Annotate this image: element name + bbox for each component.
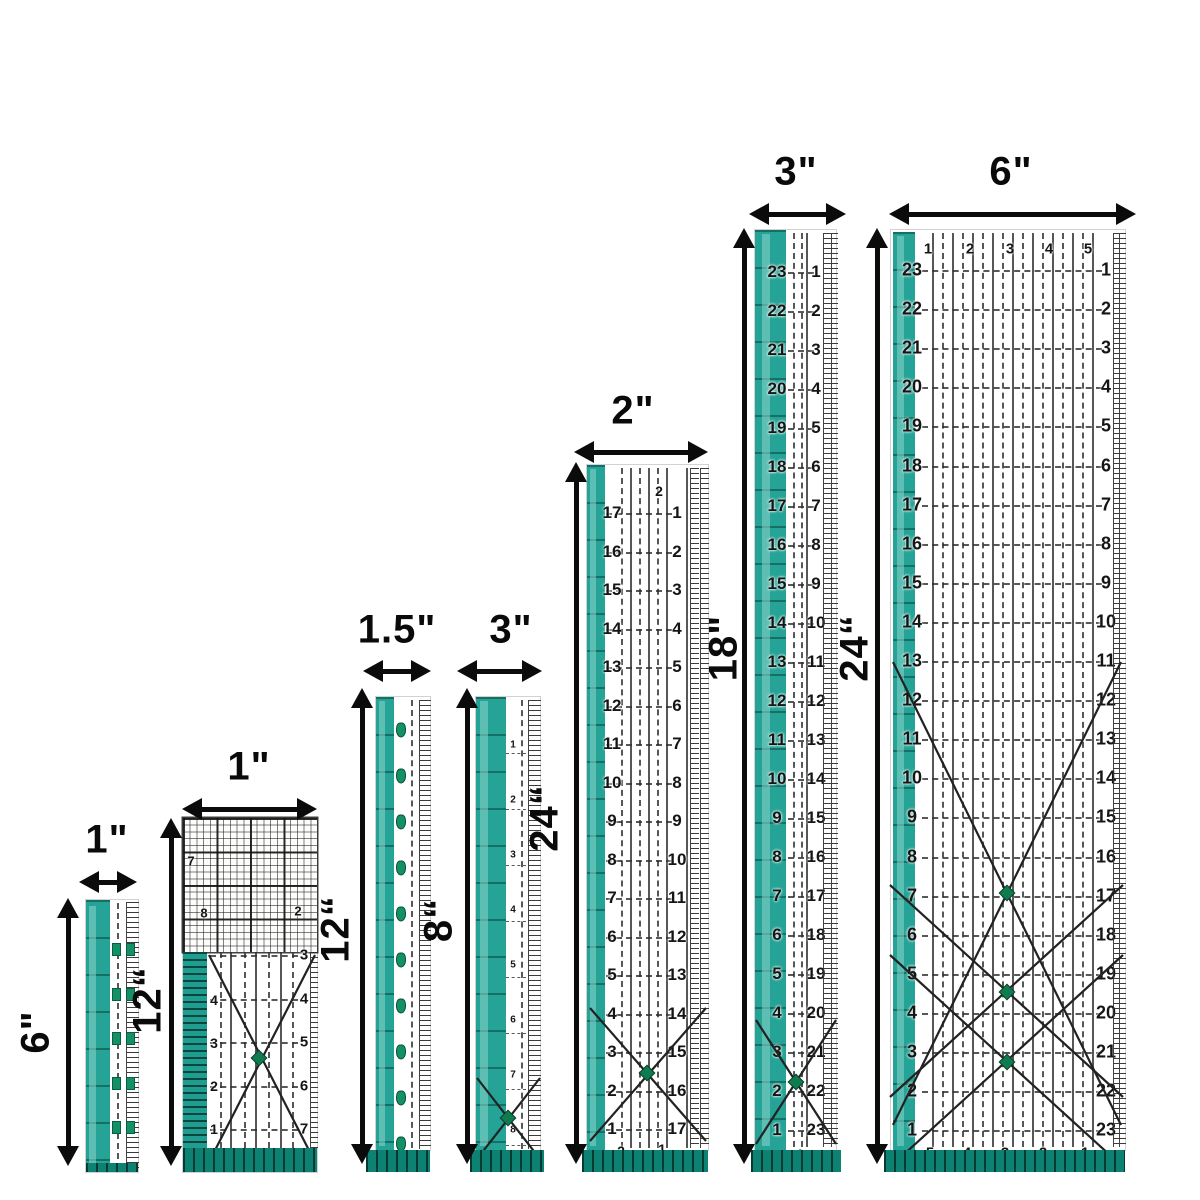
height-label: 24“ [833, 614, 878, 682]
ruler-number: 15 [668, 1042, 687, 1062]
column-line [280, 952, 282, 1148]
ruler-number: 21 [902, 338, 922, 359]
arrowhead-icon [457, 660, 477, 682]
arrowhead-icon [574, 441, 594, 463]
inch-row-line [922, 426, 1102, 428]
ruler-number: 5 [1084, 241, 1092, 258]
width-arrow [901, 212, 1124, 217]
green-marker [126, 1032, 135, 1045]
height-label: 24“ [523, 784, 568, 852]
ruler-number: 7 [187, 854, 194, 869]
bottom-edge [366, 1150, 430, 1172]
arrowhead-icon [117, 871, 137, 893]
ruler-number: 7 [811, 496, 820, 516]
stitch-tick-column [411, 700, 413, 1148]
inch-row-line [922, 309, 1102, 311]
ruler-number: 14 [668, 1004, 687, 1024]
ruler-number: 8 [1101, 533, 1111, 554]
stitch-tick-column [801, 233, 803, 1147]
arrowhead-icon [1116, 203, 1136, 225]
bottom-edge [884, 1150, 1125, 1172]
ruler-number: 8 [772, 847, 781, 867]
inch-row-line [788, 584, 814, 586]
inch-row-line [788, 350, 814, 352]
ruler-number: 16 [902, 533, 922, 554]
arrowhead-icon [733, 228, 755, 248]
ruler-number: 7 [1101, 494, 1111, 515]
green-marker [126, 943, 135, 956]
inch-row-line [922, 1091, 1102, 1093]
column-line [648, 468, 650, 1148]
width-label: 1.5" [358, 608, 437, 653]
stitch-tick-column [1062, 233, 1064, 1147]
ruler-number: 3 [907, 1042, 917, 1063]
ruler-number: 9 [1101, 572, 1111, 593]
green-marker [112, 1032, 121, 1045]
column-line [1032, 233, 1034, 1147]
inch-row-line [922, 583, 1102, 585]
ruler-number: 11 [902, 729, 921, 750]
ruler-number: 4 [210, 992, 218, 1008]
inch-row-line [788, 272, 814, 274]
teal-edge [183, 952, 207, 1148]
ruler-number: 5 [1101, 416, 1111, 437]
green-pin-marker [396, 769, 406, 784]
ruler-number: 4 [300, 990, 308, 1007]
arrowhead-icon [456, 1144, 478, 1164]
stitch-tick-column [793, 233, 795, 1147]
stitch-tick-column [962, 233, 964, 1147]
height-arrow [465, 700, 470, 1152]
inch-row-line [922, 778, 1102, 780]
edge-highlight [590, 469, 596, 1146]
green-pin-marker [396, 907, 406, 922]
inch-row-line [922, 348, 1102, 350]
ruler-number: 7 [907, 885, 917, 906]
inch-row-line [922, 896, 1102, 898]
ruler-number: 1 [772, 1120, 781, 1140]
ruler-number: 13 [768, 652, 787, 672]
ruler-number: 19 [768, 418, 787, 438]
green-marker [112, 988, 121, 1001]
arrowhead-icon [160, 1146, 182, 1166]
inch-row-line [506, 921, 526, 922]
ruler-number: 16 [603, 542, 622, 562]
column-line [1052, 233, 1054, 1147]
arrowhead-icon [749, 203, 769, 225]
ruler-number: 3 [210, 1035, 218, 1051]
width-label: 1" [85, 818, 128, 863]
inch-row-line [922, 857, 1102, 859]
green-pin-marker [396, 723, 406, 738]
green-pin-marker [396, 1045, 406, 1060]
ruler-number: 9 [772, 808, 781, 828]
ruler-number: 7 [607, 888, 616, 908]
inch-row-line [506, 1033, 526, 1034]
ruler-number: 8 [907, 846, 917, 867]
green-pin-marker [396, 999, 406, 1014]
arrowhead-icon [565, 1144, 587, 1164]
grid-section [183, 818, 317, 952]
ruler-number: 8 [811, 535, 820, 555]
column-line [972, 233, 974, 1147]
width-arrow [586, 450, 696, 455]
stitch-tick-column [621, 468, 623, 1148]
ruler-number: 2 [966, 241, 974, 258]
inch-row-line [210, 1086, 298, 1088]
ruler-number: 10 [768, 769, 787, 789]
width-label: 2" [611, 389, 654, 434]
ruler-number: 3 [672, 580, 681, 600]
height-arrow [66, 910, 71, 1154]
width-label: 6" [989, 150, 1032, 195]
column-line [1092, 233, 1094, 1147]
inch-row-line [922, 1013, 1102, 1015]
ruler-number: 5 [607, 965, 616, 985]
green-marker [112, 943, 121, 956]
ruler-number: 10 [668, 850, 687, 870]
bottom-edge [470, 1150, 544, 1172]
ruler-number: 8 [200, 906, 207, 921]
arrowhead-icon [889, 203, 909, 225]
ruler-number: 17 [603, 503, 622, 523]
inch-row-line [922, 817, 1102, 819]
ruler-number: 1 [1101, 260, 1111, 281]
inch-row-line [788, 428, 814, 430]
ruler-number: 17 [768, 496, 787, 516]
ruler-number: 7 [772, 886, 781, 906]
edge-highlight [480, 701, 488, 1146]
ruler-number: 13 [902, 651, 922, 672]
ruler-number: 18 [902, 455, 922, 476]
fine-tick-column [831, 233, 838, 1147]
ruler-number: 1 [210, 1121, 218, 1137]
column-line [932, 233, 934, 1147]
ruler-number: 6 [300, 1077, 308, 1094]
arrowhead-icon [733, 1144, 755, 1164]
arrowhead-icon [866, 228, 888, 248]
inch-row-line [788, 311, 814, 313]
ruler-number: 2 [907, 1081, 917, 1102]
inch-row-line [922, 505, 1102, 507]
ruler-number: 11 [768, 730, 786, 750]
ruler-number: 12 [603, 696, 622, 716]
arrowhead-icon [866, 1144, 888, 1164]
ruler-number: 12 [902, 690, 922, 711]
inch-row-line [506, 977, 526, 978]
stitch-tick-column [220, 952, 222, 1148]
stitch-tick-column [292, 952, 294, 1148]
green-pin-marker [396, 953, 406, 968]
ruler-number: 6 [907, 924, 917, 945]
inch-row-line [922, 661, 1102, 663]
ruler-number: 2 [1101, 299, 1111, 320]
inch-row-line [788, 389, 814, 391]
green-marker [112, 1121, 121, 1134]
ruler-number: 15 [768, 574, 787, 594]
ruler-number: 4 [1101, 377, 1111, 398]
inch-row-line [922, 1052, 1102, 1054]
height-label: 8“ [417, 898, 462, 942]
ruler-number: 2 [672, 542, 681, 562]
arrowhead-icon [456, 688, 478, 708]
width-label: 1" [227, 745, 270, 790]
inch-row-line [922, 1130, 1102, 1132]
ruler-number: 4 [672, 619, 681, 639]
inch-row-line [506, 1089, 526, 1090]
ruler-number: 3 [811, 340, 820, 360]
column-line [230, 952, 232, 1148]
ruler-number: 3 [510, 850, 516, 861]
ruler-number: 5 [811, 418, 820, 438]
ruler-number: 10 [603, 773, 622, 793]
ruler-number: 16 [668, 1081, 687, 1101]
height-arrow [574, 474, 579, 1152]
ruler-number: 6 [1101, 455, 1111, 476]
column-line [1012, 233, 1014, 1147]
ruler-number: 9 [672, 811, 681, 831]
ruler-number: 2 [294, 904, 301, 919]
inch-row-line [922, 739, 1102, 741]
ruler-number: 14 [902, 611, 922, 632]
stitch-tick-column [639, 468, 641, 1148]
ruler-number: 6 [510, 1015, 516, 1026]
inch-row-line [210, 1042, 298, 1044]
ruler-number: 5 [772, 964, 781, 984]
column-line [952, 233, 954, 1147]
inch-row-line [922, 466, 1102, 468]
arrowhead-icon [688, 441, 708, 463]
height-label: 6" [14, 1010, 59, 1053]
stitch-tick-column [1022, 233, 1024, 1147]
ruler-number: 17 [668, 1119, 687, 1139]
inch-row-line [506, 753, 526, 754]
ruler-number: 5 [300, 1034, 308, 1051]
green-pin-marker [396, 861, 406, 876]
ruler-number: 23 [902, 260, 922, 281]
height-arrow [875, 240, 880, 1152]
ruler-number: 4 [510, 905, 516, 916]
ruler-number: 10 [902, 768, 922, 789]
ruler-number: 17 [902, 494, 922, 515]
inch-row-line [506, 1145, 526, 1146]
ruler-number: 12 [768, 691, 787, 711]
ruler-number: 15 [902, 572, 922, 593]
width-label: 3" [489, 608, 532, 653]
ruler-number: 4 [772, 1003, 781, 1023]
ruler-number: 2 [607, 1081, 616, 1101]
arrowhead-icon [160, 818, 182, 838]
stitch-tick-column [1082, 233, 1084, 1147]
column-line [992, 233, 994, 1147]
stitch-tick-column [244, 952, 246, 1148]
arrowhead-icon [297, 798, 317, 820]
inch-row-line [210, 999, 298, 1001]
stitch-tick-column [521, 700, 523, 1149]
ruler-number: 20 [768, 379, 787, 399]
ruler-number: 9 [607, 811, 616, 831]
ruler-number: 9 [811, 574, 820, 594]
ruler-number: 21 [768, 340, 787, 360]
ruler-number: 13 [668, 965, 687, 985]
stitch-tick-column [982, 233, 984, 1147]
ruler-number: 14 [603, 619, 622, 639]
green-marker [126, 1077, 135, 1090]
ruler-number: 5 [907, 963, 917, 984]
ruler-number: 6 [672, 696, 681, 716]
stitch-tick-column [1042, 233, 1044, 1147]
inch-row-line [210, 1129, 298, 1131]
green-marker [126, 1121, 135, 1134]
ruler-number: 2 [655, 483, 663, 499]
edge-highlight [762, 234, 770, 1146]
inch-row-line [922, 387, 1102, 389]
arrowhead-icon [826, 203, 846, 225]
width-arrow [469, 669, 530, 674]
bottom-edge [582, 1150, 708, 1172]
ruler-number: 4 [907, 1002, 917, 1023]
fine-tick-column [1119, 233, 1126, 1147]
ruler-number: 4 [607, 1004, 616, 1024]
green-pin-marker [396, 1091, 406, 1106]
ruler-number: 22 [768, 301, 787, 321]
ruler-number: 2 [772, 1081, 781, 1101]
ruler-number: 6 [811, 457, 820, 477]
inch-row-line [210, 955, 298, 957]
ruler-number: 5 [510, 960, 516, 971]
ruler-number: 1 [811, 262, 820, 282]
arrowhead-icon [57, 898, 79, 918]
ruler-number: 4 [1045, 241, 1053, 258]
height-label: 12“ [126, 966, 171, 1034]
green-marker [112, 1077, 121, 1090]
arrowhead-icon [79, 871, 99, 893]
height-label: 18" [702, 615, 747, 681]
width-label: 3" [774, 150, 817, 195]
fine-tick-column [310, 952, 318, 1148]
ruler-number: 8 [672, 773, 681, 793]
ruler-number: 19 [902, 416, 922, 437]
quilting-rulers-size-diagram: 1"6"7824321345671"12“1.5"12“123456783"8“… [0, 0, 1200, 1200]
stitch-tick-column [657, 468, 659, 1148]
height-arrow [742, 240, 747, 1152]
ruler-number: 14 [768, 613, 787, 633]
ruler-number: 23 [768, 262, 787, 282]
inch-row-line [788, 467, 814, 469]
green-pin-marker [396, 815, 406, 830]
bottom-edge [183, 1148, 317, 1172]
inch-row-line [922, 935, 1102, 937]
bottom-edge [86, 1163, 138, 1172]
fine-tick-column [823, 233, 831, 1147]
fine-tick-column [528, 700, 541, 1149]
ruler-number: 3 [607, 1042, 616, 1062]
ruler-number: 7 [510, 1070, 516, 1081]
arrowhead-icon [351, 688, 373, 708]
inch-row-line [922, 544, 1102, 546]
ruler-number: 3 [1101, 338, 1111, 359]
height-arrow [360, 700, 365, 1152]
bottom-edge [751, 1150, 841, 1172]
arrowhead-icon [522, 660, 542, 682]
ruler-number: 1 [924, 241, 932, 258]
ruler-number: 7 [300, 1121, 308, 1138]
width-arrow [194, 807, 305, 812]
ruler-number: 22 [902, 299, 922, 320]
edge-highlight [379, 701, 385, 1146]
column-line [255, 952, 257, 1148]
ruler-number: 2 [210, 1078, 218, 1094]
height-label: 12“ [314, 895, 359, 963]
ruler-number: 1 [607, 1119, 616, 1139]
arrowhead-icon [351, 1144, 373, 1164]
inch-row-line [506, 865, 526, 866]
column-line [1072, 233, 1074, 1147]
ruler-number: 18 [768, 457, 787, 477]
fine-tick-column [690, 468, 699, 1148]
ruler-number: 3 [1006, 241, 1014, 258]
ruler-number: 11 [668, 888, 686, 908]
ruler-number: 15 [603, 580, 622, 600]
ruler-number: 11 [603, 734, 621, 754]
ruler-number: 3 [772, 1042, 781, 1062]
ruler-number: 2 [811, 301, 820, 321]
ruler-number: 8 [607, 850, 616, 870]
arrowhead-icon [57, 1146, 79, 1166]
ruler-number: 3 [300, 947, 308, 964]
width-arrow [761, 212, 834, 217]
ruler-number: 1 [672, 503, 681, 523]
ruler-number: 1 [510, 740, 516, 751]
edge-highlight [89, 906, 96, 1166]
ruler-number: 20 [902, 377, 922, 398]
inch-row-line [922, 974, 1102, 976]
arrowhead-icon [182, 798, 202, 820]
inch-row-line [922, 622, 1102, 624]
stitch-tick-column [268, 952, 270, 1148]
fine-tick-column [700, 468, 709, 1148]
ruler-number: 7 [672, 734, 681, 754]
ruler-number: 13 [603, 657, 622, 677]
ruler-number: 4 [811, 379, 820, 399]
ruler-number: 16 [768, 535, 787, 555]
column-line [630, 468, 632, 1148]
ruler-number: 12 [668, 927, 687, 947]
ruler-number: 5 [672, 657, 681, 677]
arrowhead-icon [565, 462, 587, 482]
ruler-number: 6 [772, 925, 781, 945]
arrowhead-icon [363, 660, 383, 682]
inch-row-line [788, 506, 814, 508]
stitch-tick-column [1002, 233, 1004, 1147]
ruler-number: 1 [907, 1120, 917, 1141]
inch-row-line [922, 270, 1102, 272]
ruler-number: 6 [607, 927, 616, 947]
stitch-tick-column [942, 233, 944, 1147]
inch-row-line [922, 700, 1102, 702]
ruler-number: 8 [510, 1125, 516, 1136]
ruler-number: 9 [907, 807, 917, 828]
arrowhead-icon [411, 660, 431, 682]
inch-row-line [788, 545, 814, 547]
ruler-number: 2 [510, 795, 516, 806]
